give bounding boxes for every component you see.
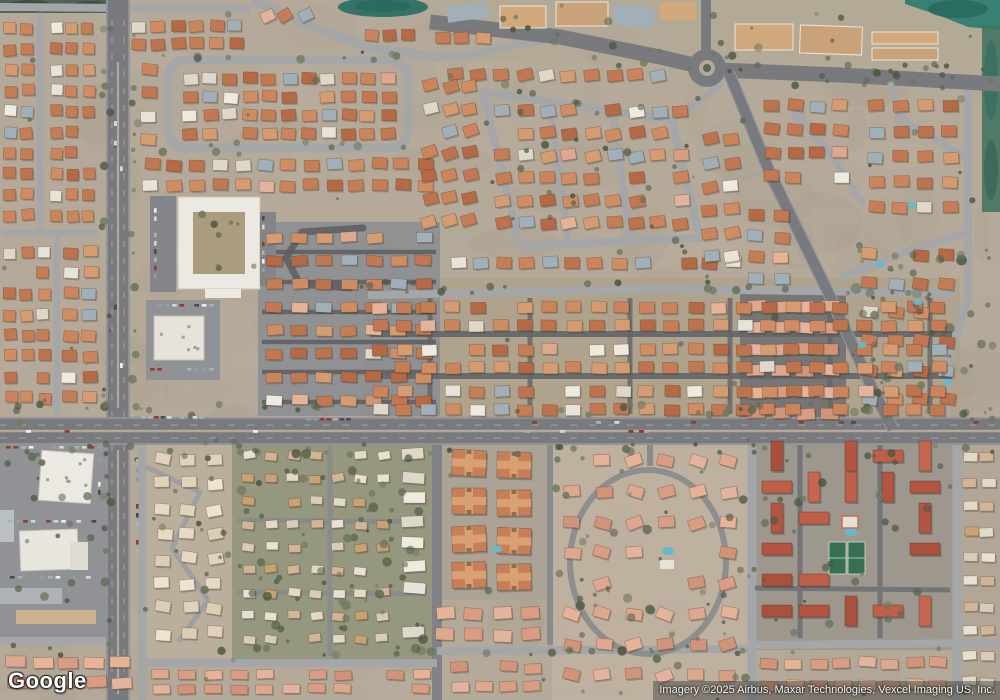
satellite-imagery-canvas[interactable] [0, 0, 1000, 700]
map-attribution: Imagery ©2025 Airbus, Maxar Technologies… [653, 681, 1000, 700]
satellite-map-viewport[interactable]: Google Imagery ©2025 Airbus, Maxar Techn… [0, 0, 1000, 700]
google-logo[interactable]: Google [8, 668, 87, 694]
